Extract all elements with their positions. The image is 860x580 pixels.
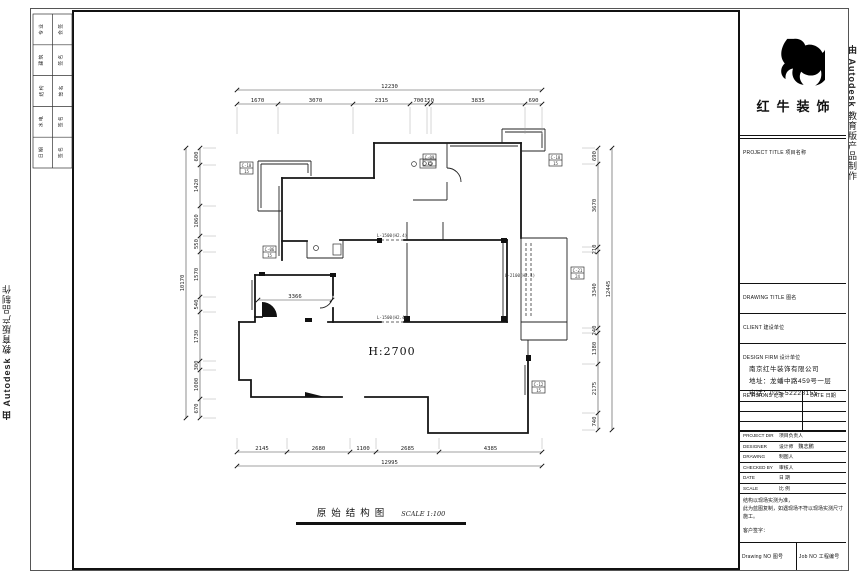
titleblock-row-designer: DESIGNER设计师魏志鹏 <box>740 442 846 453</box>
window-tag: C-0915 <box>423 154 436 166</box>
row-label-cn: 比 例 <box>779 485 790 492</box>
dim-label: 2145 <box>255 446 268 452</box>
opening-label: L-2100(H2.4) <box>505 273 535 278</box>
dim-chain-top: 167030702315700150383569012230 <box>235 84 544 134</box>
window-tag-text: 15 <box>267 253 272 258</box>
opening-label: L-1500(H2.4) <box>377 233 407 238</box>
titleblock-row-project-dir: PROJECT DIR项目负责人 <box>740 431 846 442</box>
dim-chain-left: 6001420106055015705401730300100067010170 <box>180 146 216 420</box>
company-name: 南京红牛装饰有限公司 <box>743 364 843 376</box>
interior-dim-label: 3366 <box>288 294 301 300</box>
sign-strip-cell: 日 期 <box>39 147 45 158</box>
row-label-en: DESIGNER <box>743 444 779 449</box>
ceiling-height-label: H:2700 <box>368 345 415 358</box>
revisions-header: REVISIONS 记录 DATE 日期 <box>740 391 846 402</box>
dim-label: 690 <box>528 98 538 104</box>
client-sign-label: 客户签字： <box>743 527 843 535</box>
dim-label: 210 <box>592 244 598 254</box>
note-line: 此为蓝图复制，如遇现场不符以现场实测尺寸施工。 <box>743 505 843 521</box>
window-tag-text: C-21 <box>573 268 583 273</box>
dim-overall-label: 12995 <box>381 460 398 466</box>
number-cells: Drawing NO 图号 Job NO 工程编号 <box>740 542 846 570</box>
dim-label: 600 <box>194 151 200 161</box>
dim-label: 1670 <box>251 98 264 104</box>
titleblock-row-drawing: DRAWING制图人 <box>740 452 846 463</box>
row-label-cn: 设计师 <box>779 443 793 450</box>
sign-strip-cell: 建 筑 <box>38 55 45 66</box>
revisions-label: REVISIONS 记录 <box>740 391 787 401</box>
dim-label: 3835 <box>471 98 484 104</box>
dim-label: 3070 <box>309 98 322 104</box>
revisions-table: REVISIONS 记录 DATE 日期 <box>740 390 846 430</box>
dim-label: 240 <box>592 325 598 335</box>
drawing-no-cell: Drawing NO 图号 <box>740 543 797 570</box>
date-col-label: DATE 日期 <box>807 391 846 401</box>
sign-strip-cell: 签 名 <box>57 147 64 158</box>
drawing-title-text: 原始结构图 <box>317 505 390 519</box>
dim-label: 540 <box>194 299 200 309</box>
brand-name: 红牛装饰 <box>749 96 836 115</box>
dim-label: 3340 <box>592 283 598 296</box>
dim-label: 1570 <box>194 268 200 281</box>
dim-chain-bottom: 2145268011002685438512995 <box>235 438 544 468</box>
dim-label: 1380 <box>592 342 598 355</box>
sign-strip-cell: 水 电 <box>38 116 45 127</box>
divider <box>740 135 846 136</box>
sign-strip-cell: 专 业 <box>38 24 45 35</box>
window-tag-text: 15 <box>536 388 541 393</box>
floor-plan-walls <box>239 129 567 433</box>
bull-logo-icon <box>761 34 825 90</box>
window-tag-text: 15 <box>427 161 432 166</box>
sign-strip-cell: 会 签 <box>57 24 64 35</box>
floor-plan-canvas: 1670307023157001503835690122302145268011… <box>0 0 860 580</box>
sign-strip: 专 业会 签建 筑签 名结 构签 名水 电签 名日 期签 名 <box>33 14 72 168</box>
brand-section: 红牛装饰 <box>740 10 846 138</box>
window-tag: C-2124 <box>571 267 584 279</box>
dim-overall-label: 10170 <box>180 275 186 292</box>
window-tag: C-0615 <box>263 246 276 258</box>
row-label-cn: 项目负责人 <box>779 432 803 439</box>
job-no-cell: Job NO 工程编号 <box>797 543 846 570</box>
row-label-en: PROJECT DIR <box>743 433 779 438</box>
dimension-chains: 1670307023157001503835690122302145268011… <box>180 84 614 468</box>
row-label-cn: 日 期 <box>779 474 790 481</box>
note-block: 结构以现场实测为准，此为蓝图复制，如遇现场不符以现场实测尺寸施工。客户签字： <box>740 493 846 542</box>
dim-label: 550 <box>194 239 200 249</box>
design-firm-cell: DESIGN FIRM 设计单位 南京红牛装饰有限公司 地址：龙蟠中路459号一… <box>740 343 846 390</box>
dim-label: 1420 <box>194 179 200 192</box>
row-label-en: SCALE <box>743 486 779 491</box>
cad-sheet: 由 Autodesk 教育版产品制作 由 Autodesk 教育版产品制作 <box>0 0 860 580</box>
window-tag-text: C-12 <box>534 382 544 387</box>
note-line: 结构以现场实测为准， <box>743 497 843 505</box>
window-tag-text: 24 <box>575 274 580 279</box>
drawing-title-footer: 原始结构图 SCALE 1:100 <box>296 505 466 525</box>
dim-overall-label: 12230 <box>381 84 398 90</box>
project-title-label: PROJECT TITLE 项目名称 <box>743 150 806 156</box>
sign-strip-cell: 签 名 <box>57 116 64 127</box>
window-tag: C-1815 <box>549 154 562 166</box>
drawing-no-label: Drawing NO 图号 <box>742 554 783 560</box>
signature-rows: PROJECT DIR项目负责人DESIGNER设计师魏志鹏DRAWING制图人… <box>740 430 846 493</box>
dim-label: 2680 <box>312 446 325 452</box>
drawing-title-cell: DRAWING TITLE 图名 <box>740 283 846 313</box>
window-tag-text: C-09 <box>425 155 435 160</box>
dim-chain-right: 690367021033402401380217574012445 <box>582 146 614 432</box>
sign-strip-cell: 结 构 <box>38 85 45 96</box>
dim-label: 3670 <box>592 199 598 212</box>
dim-label: 2685 <box>401 446 414 452</box>
dim-label: 1100 <box>356 446 369 452</box>
opening-label: L-1500(H2.4) <box>377 315 407 320</box>
row-value: 魏志鹏 <box>798 443 814 450</box>
dim-label: 1730 <box>194 330 200 343</box>
window-tag-text: 15 <box>244 169 249 174</box>
project-title-cell: PROJECT TITLE 项目名称 <box>740 138 846 283</box>
dim-label: 670 <box>194 403 200 413</box>
row-label-cn: 制图人 <box>779 453 793 460</box>
dim-label: 690 <box>592 151 598 161</box>
window-tag: C-1815 <box>240 162 253 174</box>
drawing-scale-text: SCALE 1:100 <box>401 510 445 518</box>
titleblock-row-checked-by: CHECKED BY审核人 <box>740 463 846 474</box>
dim-label: 1000 <box>194 378 200 391</box>
dim-label: 2175 <box>592 382 598 395</box>
window-tag-text: C-18 <box>551 155 561 160</box>
window-tag-text: C-06 <box>265 247 275 252</box>
sign-strip-cell: 签 名 <box>57 85 64 96</box>
window-tag: C-1215 <box>532 381 545 393</box>
titleblock-row-scale: SCALE比 例 <box>740 484 846 494</box>
dim-label: 2315 <box>375 98 388 104</box>
plan-labels: H:27003366L-1500(H2.4)L-1500(H2.4)L-2100… <box>256 233 535 358</box>
dim-overall-label: 12445 <box>606 281 612 298</box>
revision-row <box>740 412 846 422</box>
dim-label: 150 <box>424 98 434 104</box>
row-label-cn: 审核人 <box>779 464 793 471</box>
dim-label: 700 <box>413 98 423 104</box>
row-label-en: DATE <box>743 475 779 480</box>
title-block: 红牛装饰 PROJECT TITLE 项目名称 DRAWING TITLE 图名… <box>738 10 846 570</box>
client-label: CLIENT 建设单位 <box>743 325 784 331</box>
row-label-en: CHECKED BY <box>743 465 779 470</box>
divider <box>802 391 803 430</box>
dim-label: 4385 <box>484 446 497 452</box>
dim-label: 300 <box>194 360 200 370</box>
sign-strip-cell: 签 名 <box>57 55 64 66</box>
design-firm-label: DESIGN FIRM 设计单位 <box>743 355 800 361</box>
drawing-title-label: DRAWING TITLE 图名 <box>743 295 796 301</box>
client-cell: CLIENT 建设单位 <box>740 313 846 343</box>
job-no-label: Job NO 工程编号 <box>799 554 840 560</box>
titleblock-row-date: DATE日 期 <box>740 473 846 484</box>
dim-label: 740 <box>592 416 598 426</box>
dim-label: 1060 <box>194 214 200 227</box>
window-tag-text: 15 <box>553 161 558 166</box>
company-address: 地址：龙蟠中路459号一层 <box>743 376 843 388</box>
window-tag-text: C-18 <box>242 163 252 168</box>
row-label-en: DRAWING <box>743 454 779 459</box>
revision-row <box>740 402 846 412</box>
